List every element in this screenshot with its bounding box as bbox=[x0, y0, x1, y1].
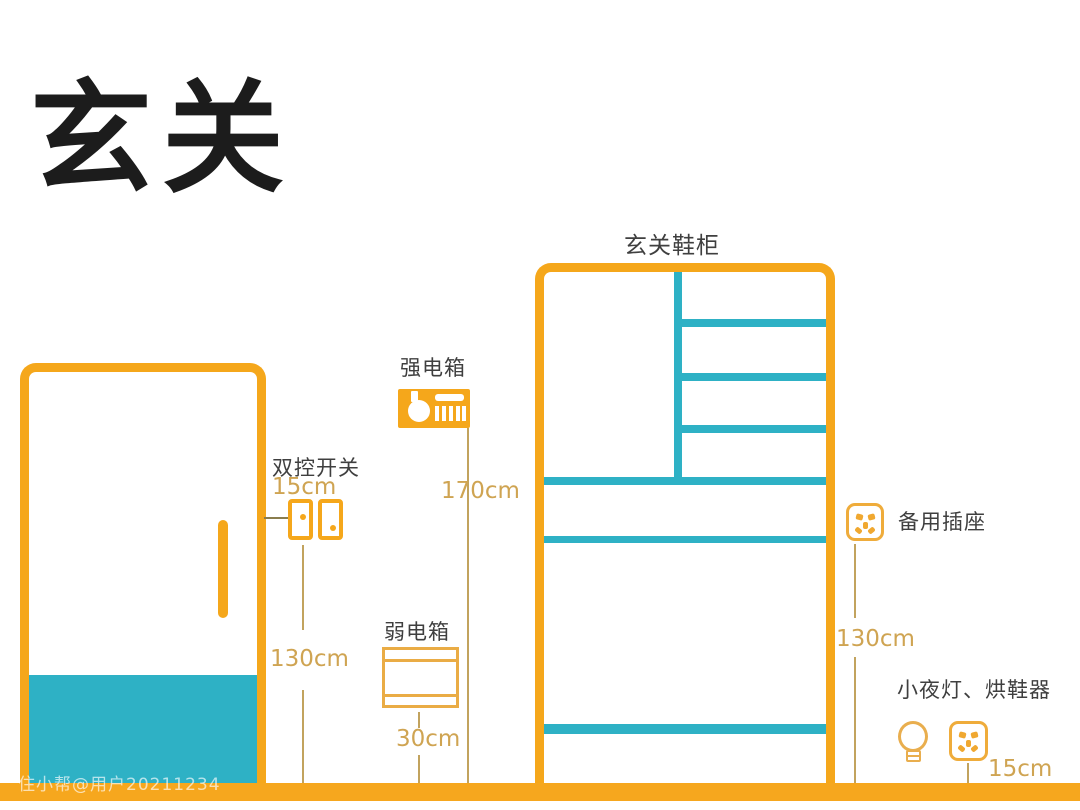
spare-socket-height-line-upper bbox=[854, 544, 856, 618]
socket-hole bbox=[855, 513, 863, 521]
cabinet-shelf-full bbox=[544, 477, 826, 485]
cabinet-shelf-full bbox=[544, 724, 826, 734]
entryway-plan-diagram: 玄关 双控开关 15cm 130cm 强电箱 170cm 弱电箱 30cm 玄关… bbox=[0, 0, 1080, 810]
switch-height-line-upper bbox=[302, 545, 304, 630]
switch-dot bbox=[300, 514, 306, 520]
breaker-switch-bar bbox=[456, 406, 460, 421]
cabinet-divider bbox=[674, 272, 682, 484]
weak-box-height-line-lower bbox=[418, 755, 420, 783]
breaker-panel-icon bbox=[398, 389, 470, 428]
socket-hole bbox=[867, 526, 876, 534]
weak-box-label: 弱电箱 bbox=[384, 616, 450, 646]
cabinet-shelf bbox=[682, 373, 826, 381]
night-light-height-value: 15cm bbox=[988, 756, 1052, 782]
switch-connector-line bbox=[264, 517, 290, 519]
socket-hole bbox=[970, 744, 979, 752]
strong-box-height-value: 170cm bbox=[441, 478, 520, 504]
socket-hole bbox=[958, 731, 966, 739]
breaker-top-bar bbox=[435, 394, 464, 401]
double-switch-icon bbox=[318, 499, 343, 540]
night-light-label: 小夜灯、烘鞋器 bbox=[897, 674, 1051, 704]
night-light-height-line bbox=[967, 763, 969, 783]
bulb-thread-line bbox=[908, 755, 919, 757]
spare-socket-label: 备用插座 bbox=[898, 506, 986, 536]
spare-socket-height-value: 130cm bbox=[836, 626, 915, 652]
strong-box-label: 强电箱 bbox=[400, 352, 466, 382]
cabinet-label: 玄关鞋柜 bbox=[624, 226, 720, 260]
switch-height-line-lower bbox=[302, 690, 304, 783]
light-bulb-icon bbox=[898, 721, 928, 752]
socket-hole bbox=[867, 513, 875, 521]
switch-height-value: 130cm bbox=[270, 646, 349, 672]
network-box-icon bbox=[382, 647, 459, 708]
cabinet-shelf bbox=[682, 319, 826, 327]
socket-hole bbox=[854, 526, 863, 534]
power-socket-icon bbox=[949, 721, 988, 761]
watermark: 住小帮@用户20211234 bbox=[18, 770, 221, 795]
door-handle-icon bbox=[218, 520, 228, 618]
network-box-line bbox=[385, 694, 456, 697]
switch-offset-value: 15cm bbox=[272, 474, 336, 500]
cabinet-shelf-full bbox=[544, 536, 826, 543]
switch-dot bbox=[330, 525, 336, 531]
network-box-line bbox=[385, 659, 456, 662]
weak-box-height-value: 30cm bbox=[396, 726, 460, 752]
double-switch-icon bbox=[288, 499, 313, 540]
breaker-switch-bar bbox=[462, 406, 466, 421]
socket-hole bbox=[863, 522, 868, 529]
socket-hole bbox=[966, 740, 971, 747]
door-lower-panel bbox=[29, 675, 257, 783]
breaker-switch-bar bbox=[442, 406, 446, 421]
page-title: 玄关 bbox=[30, 72, 294, 206]
cabinet-shelf bbox=[682, 425, 826, 433]
socket-hole bbox=[957, 744, 966, 752]
shoe-cabinet-icon bbox=[535, 263, 835, 783]
socket-hole bbox=[970, 731, 978, 739]
light-bulb-base bbox=[906, 750, 921, 762]
breaker-switch-bar bbox=[449, 406, 453, 421]
breaker-switch-bar bbox=[435, 406, 439, 421]
power-socket-icon bbox=[846, 503, 884, 541]
spare-socket-height-line-lower bbox=[854, 657, 856, 783]
breaker-dial bbox=[408, 400, 430, 422]
